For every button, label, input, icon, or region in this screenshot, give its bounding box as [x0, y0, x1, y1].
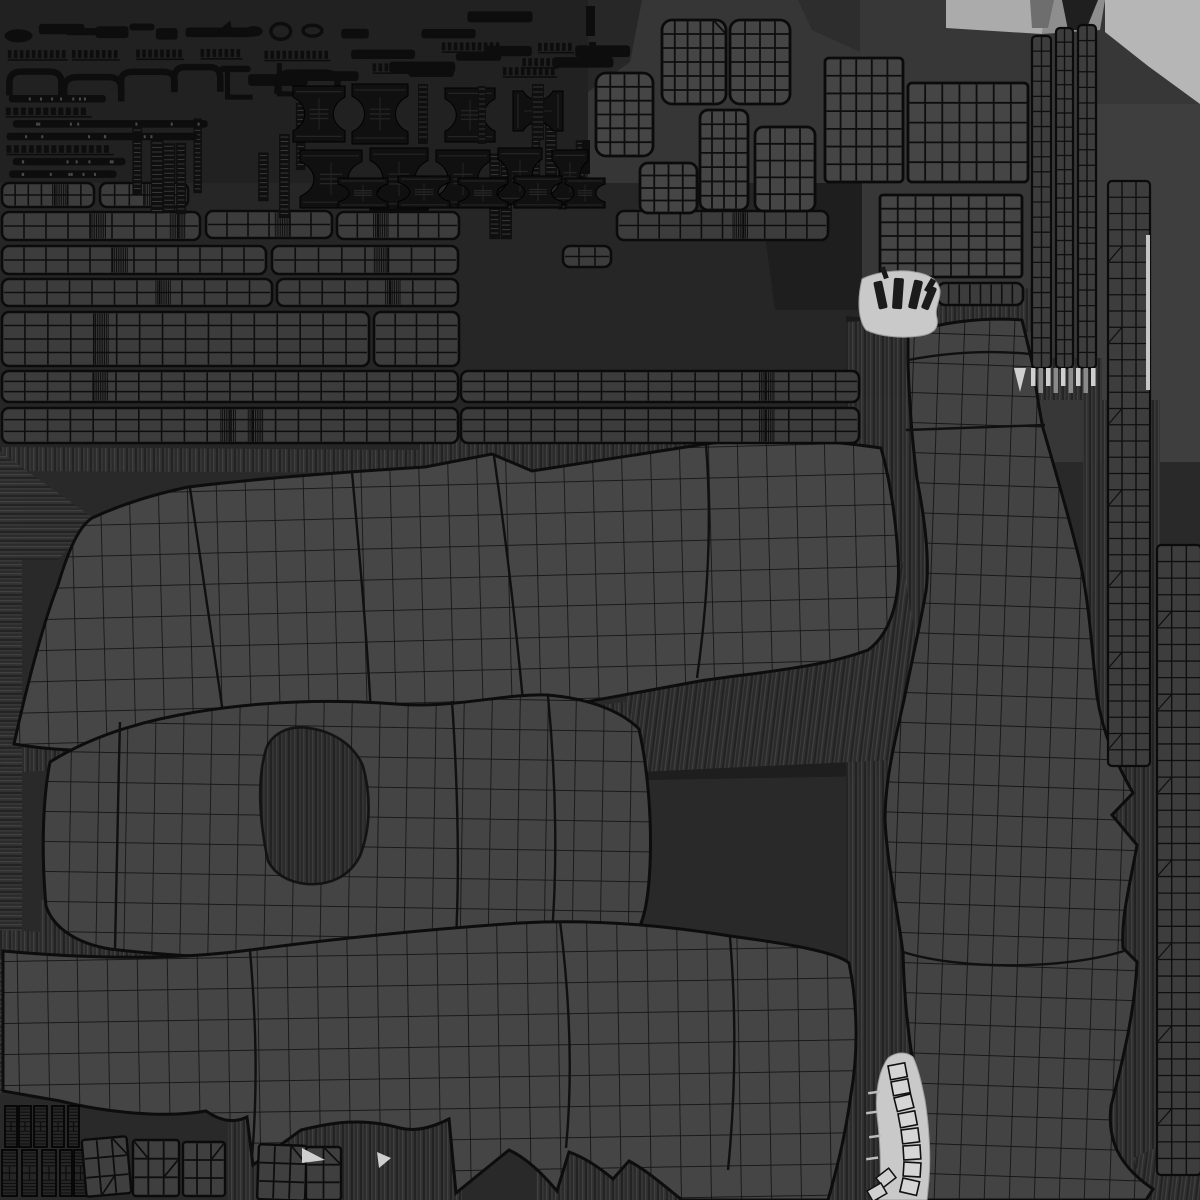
spine-strip: [2, 1150, 17, 1196]
fray-tooth: [1046, 368, 1051, 386]
vertical-strip: [1157, 545, 1200, 1175]
small-grid-square: [133, 1140, 179, 1196]
vertical-strip: [1078, 25, 1096, 368]
belt-strip: [374, 312, 459, 366]
light-sliver: [1146, 235, 1150, 390]
belt-strip: [337, 212, 459, 239]
pocket-grid: [755, 127, 815, 211]
belt-strip: [206, 211, 332, 238]
vertical-strip: [1032, 36, 1051, 368]
spine-strip: [42, 1150, 56, 1196]
belt-strip: [461, 408, 859, 443]
small-grid-square: [183, 1142, 225, 1196]
pocket-grid: [880, 195, 1022, 277]
vertical-strip: [1108, 181, 1150, 766]
atlas-svg: [0, 0, 1200, 1200]
spine-strip: [68, 1106, 79, 1147]
belt-strip: [2, 183, 94, 207]
pocket-grid: [700, 110, 748, 210]
belt-strip: [272, 246, 458, 274]
fray-tooth: [1076, 368, 1081, 386]
pocket-grid: [825, 58, 903, 182]
belt-strip: [2, 312, 369, 366]
vertical-strip: [1056, 28, 1073, 368]
uv-texture-atlas: [0, 0, 1200, 1200]
fray-tooth: [1039, 368, 1044, 393]
spine-strips-layer: [2, 1106, 87, 1196]
fray-tooth: [1091, 368, 1096, 386]
spine-strip: [34, 1106, 47, 1147]
spine-strip: [52, 1106, 64, 1147]
neck-hole: [260, 727, 369, 884]
pocket-grid: [596, 73, 653, 156]
texture-bleed-fringe: [0, 447, 420, 473]
spine-strip: [19, 1106, 31, 1147]
pocket-grid: [730, 20, 790, 104]
spool-divider-bar: [418, 84, 428, 144]
spool-divider-bar: [532, 84, 544, 140]
belt-strip: [938, 283, 1023, 305]
fray-tooth: [1061, 368, 1066, 386]
belt-strip: [2, 212, 200, 240]
belt-strip: [2, 371, 458, 402]
belt-strip: [277, 279, 458, 306]
fray-tooth: [1069, 368, 1074, 393]
spine-strip: [22, 1150, 37, 1196]
belt-strip: [461, 371, 859, 402]
pocket-grid: [640, 163, 697, 213]
spool-divider-bar: [478, 86, 486, 144]
spine-strip: [60, 1150, 72, 1196]
belt-strip: [617, 211, 828, 240]
small-grid-square: [82, 1136, 132, 1197]
pocket-grid: [662, 20, 726, 104]
small-grid-square: [257, 1144, 307, 1200]
belt-strip: [2, 279, 272, 306]
spine-strip: [5, 1106, 17, 1147]
belt-strip: [2, 408, 458, 443]
belt-strip: [563, 246, 611, 267]
fray-tooth: [1031, 368, 1036, 386]
zipper-pull-top: [859, 266, 940, 337]
hardware-vbar: [586, 6, 595, 36]
hardware-vbar: [589, 42, 596, 62]
corner-squares-layer: [82, 1136, 341, 1200]
pocket-grid: [908, 83, 1028, 182]
fray-tooth: [1084, 368, 1089, 393]
fray-tooth: [1054, 368, 1059, 393]
belt-strip: [2, 246, 266, 274]
